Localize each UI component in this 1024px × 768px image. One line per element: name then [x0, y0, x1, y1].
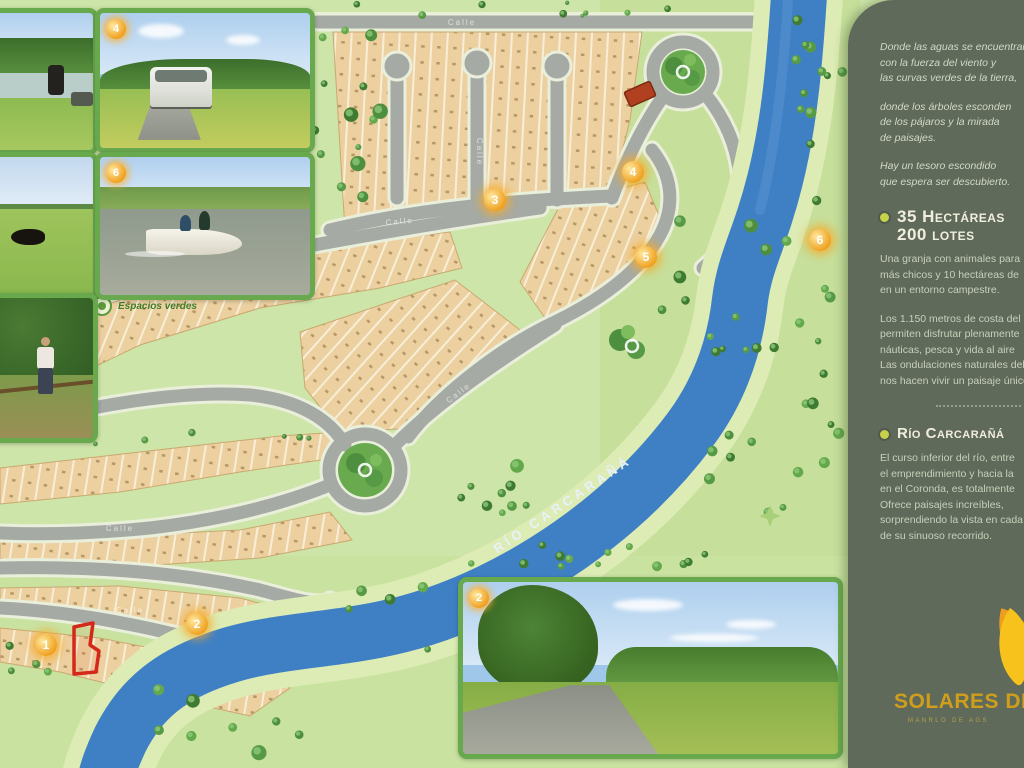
logo-leaves-icon — [990, 598, 1024, 690]
map-badge-6[interactable]: 6 — [809, 229, 831, 251]
section-hectareas-header: 35 Hectáreas 200 lotes — [880, 208, 1024, 244]
site-plan-poster: Calle Calle Calle Calle Calle Calle Río … — [0, 0, 1024, 768]
bullet-icon — [880, 430, 889, 439]
intro-paragraph: donde los árboles esconden de los pájaro… — [880, 100, 1024, 147]
intro-paragraph: Donde las aguas se encuentran con la fue… — [880, 40, 1024, 87]
map-badge-2[interactable]: 2 — [186, 613, 208, 635]
section-title-line2: 200 lotes — [897, 226, 1005, 244]
section-rio-header: Río Carcarañá — [880, 425, 1024, 443]
map-badge-4[interactable]: 4 — [622, 161, 644, 183]
map-badge-1[interactable]: 1 — [35, 634, 57, 656]
body-paragraph: Los 1.150 metros de costa del permiten d… — [880, 312, 1024, 390]
dotted-divider — [936, 405, 1021, 407]
map-badge-5[interactable]: 5 — [635, 246, 657, 268]
section-title-line1: 35 Hectáreas — [897, 208, 1005, 226]
body-paragraph: El curso inferior del río, entre el empr… — [880, 451, 1024, 544]
map-badge-3[interactable]: 3 — [484, 189, 506, 211]
intro-paragraph: Hay un tesoro escondido que espera ser d… — [880, 159, 1024, 190]
section-title: 35 Hectáreas 200 lotes — [897, 208, 1005, 244]
logo-subtext: Manrlo de Ags — [908, 718, 989, 724]
badge-layer: 123456 — [0, 0, 860, 768]
bullet-icon — [880, 213, 889, 222]
info-sidebar: Donde las aguas se encuentran con la fue… — [848, 0, 1024, 768]
section-title: Río Carcarañá — [897, 425, 1005, 443]
logo-name: Solares del — [894, 690, 1024, 714]
body-paragraph: Una granja con animales para más chicos … — [880, 252, 1024, 299]
